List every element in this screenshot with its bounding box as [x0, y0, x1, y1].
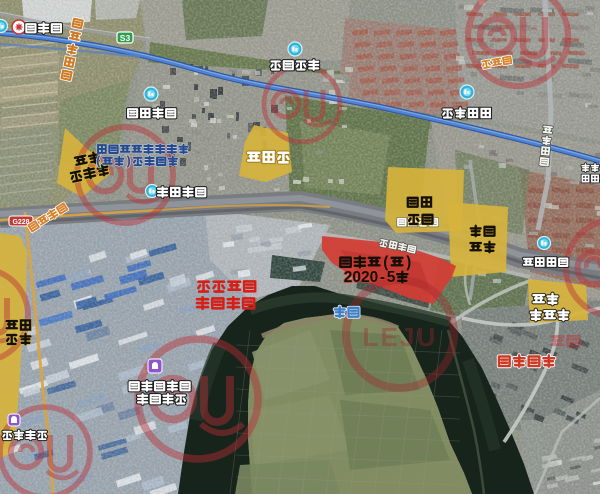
svg-text:5: 5 — [387, 269, 396, 286]
svg-text:S3: S3 — [120, 33, 131, 43]
svg-text:): ) — [126, 154, 130, 168]
svg-text:2: 2 — [344, 269, 353, 286]
svg-text:LEJU: LEJU — [362, 322, 437, 352]
svg-text:2: 2 — [361, 269, 370, 286]
svg-text:0: 0 — [352, 269, 361, 286]
svg-text:-: - — [380, 269, 385, 286]
svg-text:): ) — [406, 254, 411, 271]
svg-text:0: 0 — [370, 269, 379, 286]
